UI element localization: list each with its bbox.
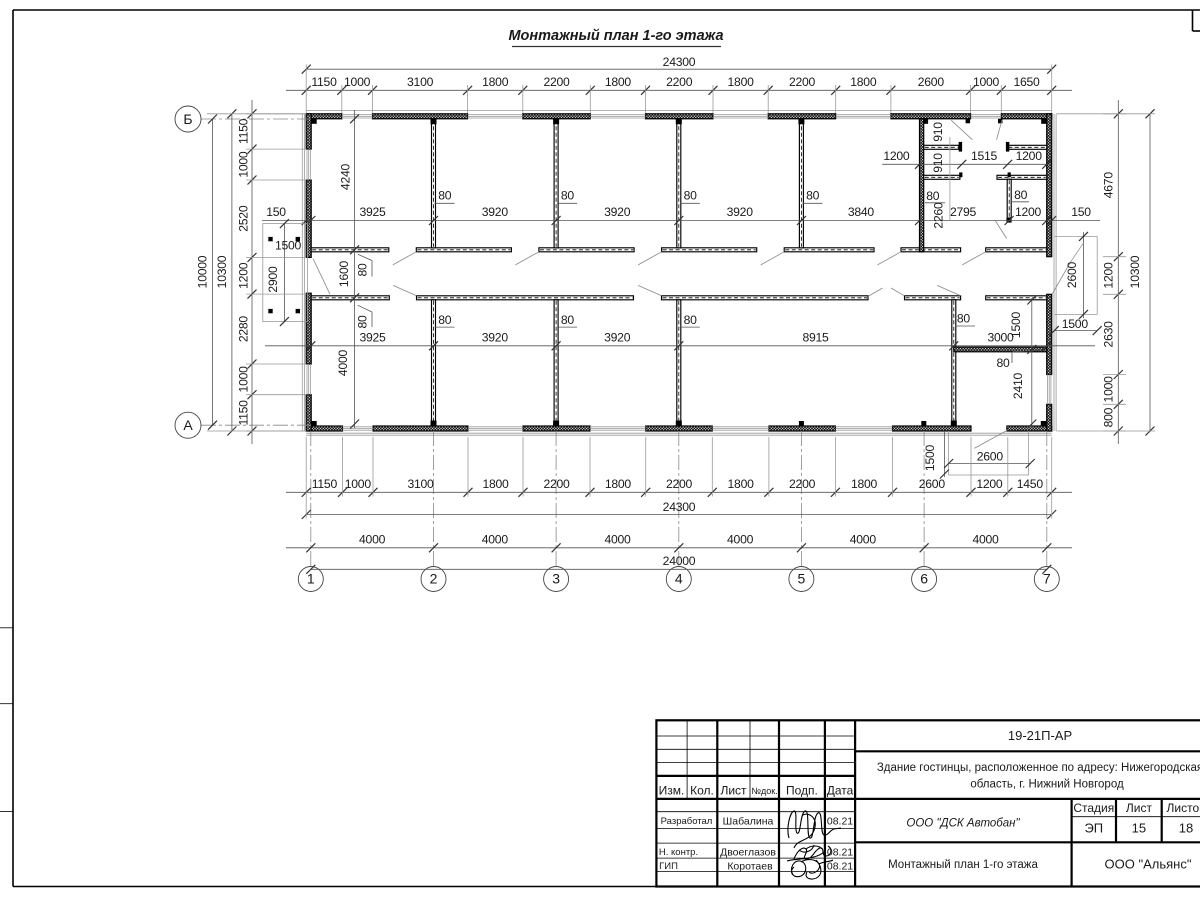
- svg-text:1800: 1800: [728, 477, 755, 491]
- svg-text:10300: 10300: [215, 255, 229, 288]
- svg-text:1800: 1800: [850, 75, 877, 89]
- svg-text:80: 80: [957, 312, 971, 326]
- svg-text:2520: 2520: [237, 205, 251, 232]
- svg-text:1200: 1200: [1102, 262, 1116, 289]
- svg-text:4000: 4000: [482, 532, 509, 546]
- svg-text:1500: 1500: [1009, 311, 1023, 338]
- svg-text:Монтажный план 1-го этажа: Монтажный план 1-го этажа: [888, 859, 1038, 871]
- svg-text:80: 80: [684, 189, 698, 203]
- svg-text:80: 80: [561, 189, 575, 203]
- svg-text:Дата: Дата: [827, 784, 854, 798]
- svg-text:2280: 2280: [237, 316, 251, 343]
- svg-text:2900: 2900: [266, 266, 280, 293]
- svg-text:3920: 3920: [482, 205, 509, 219]
- svg-text:1150: 1150: [312, 477, 338, 491]
- svg-text:Шабалина: Шабалина: [723, 816, 774, 828]
- svg-text:ООО "ДСК Автобан": ООО "ДСК Автобан": [906, 818, 1020, 830]
- svg-text:2600: 2600: [977, 449, 1004, 463]
- svg-text:08.21: 08.21: [827, 816, 853, 828]
- svg-text:3920: 3920: [604, 205, 631, 219]
- svg-text:4000: 4000: [850, 532, 877, 546]
- svg-text:10300: 10300: [1128, 255, 1142, 288]
- svg-text:80: 80: [561, 313, 575, 327]
- svg-text:2600: 2600: [919, 477, 946, 491]
- svg-text:Здание гостинцы, расположенное: Здание гостинцы, расположенное по адресу…: [877, 762, 1200, 774]
- svg-text:80: 80: [356, 263, 370, 277]
- svg-text:8915: 8915: [802, 330, 829, 344]
- svg-text:1515: 1515: [971, 149, 998, 163]
- svg-text:2200: 2200: [666, 477, 693, 491]
- svg-text:3920: 3920: [604, 330, 631, 344]
- svg-text:3: 3: [552, 571, 560, 587]
- svg-text:1150: 1150: [311, 75, 337, 89]
- svg-text:6: 6: [920, 571, 928, 587]
- svg-text:3925: 3925: [359, 330, 386, 344]
- svg-text:18: 18: [1179, 821, 1193, 836]
- svg-text:2600: 2600: [918, 75, 945, 89]
- svg-text:80: 80: [806, 189, 820, 203]
- svg-text:4: 4: [675, 571, 683, 587]
- svg-text:Разработал: Разработал: [661, 816, 713, 827]
- svg-text:1000: 1000: [344, 75, 371, 89]
- svg-text:ООО "Альянс": ООО "Альянс": [1105, 857, 1192, 872]
- svg-text:910: 910: [931, 122, 945, 142]
- svg-text:1200: 1200: [1015, 205, 1042, 219]
- svg-text:24300: 24300: [663, 55, 696, 69]
- svg-text:1800: 1800: [482, 477, 509, 491]
- svg-text:1200: 1200: [237, 262, 251, 289]
- svg-text:3925: 3925: [359, 205, 386, 219]
- svg-text:150: 150: [266, 205, 286, 219]
- svg-text:3840: 3840: [848, 205, 875, 219]
- svg-text:1800: 1800: [728, 75, 755, 89]
- svg-text:4000: 4000: [972, 532, 999, 546]
- svg-text:1650: 1650: [1013, 75, 1040, 89]
- svg-text:1800: 1800: [482, 75, 509, 89]
- svg-text:1000: 1000: [237, 151, 251, 178]
- svg-text:1800: 1800: [851, 477, 878, 491]
- svg-text:80: 80: [438, 189, 452, 203]
- svg-text:Н. контр.: Н. контр.: [659, 847, 698, 858]
- svg-text:2200: 2200: [789, 477, 816, 491]
- svg-text:2410: 2410: [1011, 372, 1025, 399]
- svg-text:2: 2: [430, 571, 438, 587]
- svg-text:4000: 4000: [727, 532, 754, 546]
- svg-text:1200: 1200: [883, 149, 910, 163]
- svg-text:4000: 4000: [604, 532, 631, 546]
- svg-text:2200: 2200: [789, 75, 816, 89]
- svg-text:1200: 1200: [976, 477, 1003, 491]
- svg-text:4000: 4000: [336, 349, 350, 376]
- svg-text:15: 15: [1132, 821, 1146, 836]
- svg-text:Двоеглазов: Двоеглазов: [720, 847, 776, 859]
- svg-text:80: 80: [996, 356, 1010, 370]
- svg-text:Изм.: Изм.: [659, 784, 685, 798]
- svg-text:5: 5: [798, 571, 806, 587]
- svg-text:910: 910: [931, 153, 945, 173]
- svg-text:Коротаев: Коротаев: [727, 861, 773, 873]
- svg-text:150: 150: [1071, 205, 1091, 219]
- svg-text:1800: 1800: [605, 75, 632, 89]
- svg-text:2260: 2260: [932, 202, 946, 229]
- svg-text:1000: 1000: [973, 75, 1000, 89]
- svg-text:4670: 4670: [1102, 172, 1116, 199]
- svg-text:Подп.: Подп.: [786, 784, 818, 798]
- svg-text:800: 800: [1102, 407, 1116, 427]
- svg-text:Стадия: Стадия: [1073, 801, 1114, 815]
- svg-text:1150: 1150: [237, 118, 251, 144]
- svg-text:ГИП: ГИП: [659, 861, 678, 872]
- svg-text:№док.: №док.: [751, 786, 777, 796]
- svg-text:24000: 24000: [663, 554, 696, 568]
- svg-text:2630: 2630: [1102, 321, 1116, 348]
- svg-text:А: А: [183, 417, 193, 433]
- svg-text:08.21: 08.21: [827, 861, 853, 873]
- svg-text:1000: 1000: [237, 366, 251, 393]
- svg-text:80: 80: [356, 315, 370, 329]
- svg-text:ЭП: ЭП: [1084, 821, 1103, 836]
- svg-text:область, г. Нижний Новгород: область, г. Нижний Новгород: [970, 779, 1124, 791]
- svg-text:3100: 3100: [407, 75, 434, 89]
- svg-text:10000: 10000: [196, 255, 210, 288]
- svg-text:1150: 1150: [237, 400, 251, 426]
- svg-text:3920: 3920: [482, 330, 509, 344]
- svg-text:Лист: Лист: [720, 784, 747, 798]
- svg-text:80: 80: [684, 313, 698, 327]
- svg-text:19-21П-АР: 19-21П-АР: [1008, 728, 1072, 743]
- svg-text:1500: 1500: [275, 239, 302, 253]
- svg-text:4240: 4240: [339, 163, 353, 190]
- svg-text:1500: 1500: [923, 444, 937, 471]
- svg-text:1: 1: [307, 571, 315, 587]
- svg-text:Монтажный план 1-го этажа: Монтажный план 1-го этажа: [508, 28, 723, 44]
- svg-text:2795: 2795: [950, 205, 977, 219]
- svg-text:2200: 2200: [543, 75, 570, 89]
- svg-text:1200: 1200: [1016, 149, 1043, 163]
- svg-text:Кол.: Кол.: [690, 784, 714, 798]
- svg-text:3100: 3100: [407, 477, 434, 491]
- svg-text:80: 80: [438, 313, 452, 327]
- svg-text:2600: 2600: [1065, 261, 1079, 288]
- svg-text:80: 80: [926, 189, 940, 203]
- svg-text:2200: 2200: [543, 477, 570, 491]
- svg-text:Листов: Листов: [1167, 801, 1200, 815]
- svg-text:1800: 1800: [605, 477, 632, 491]
- svg-text:1500: 1500: [1062, 317, 1089, 331]
- svg-text:1450: 1450: [1017, 477, 1044, 491]
- svg-text:Б: Б: [183, 111, 192, 127]
- svg-text:7: 7: [1043, 571, 1051, 587]
- svg-text:2200: 2200: [666, 75, 693, 89]
- svg-text:Лист: Лист: [1126, 801, 1153, 815]
- svg-text:1600: 1600: [337, 260, 351, 287]
- svg-text:1000: 1000: [1102, 376, 1116, 403]
- svg-text:1000: 1000: [345, 477, 372, 491]
- svg-text:24300: 24300: [663, 500, 696, 514]
- svg-text:4000: 4000: [359, 532, 386, 546]
- svg-text:80: 80: [1014, 188, 1028, 202]
- svg-text:3920: 3920: [727, 205, 754, 219]
